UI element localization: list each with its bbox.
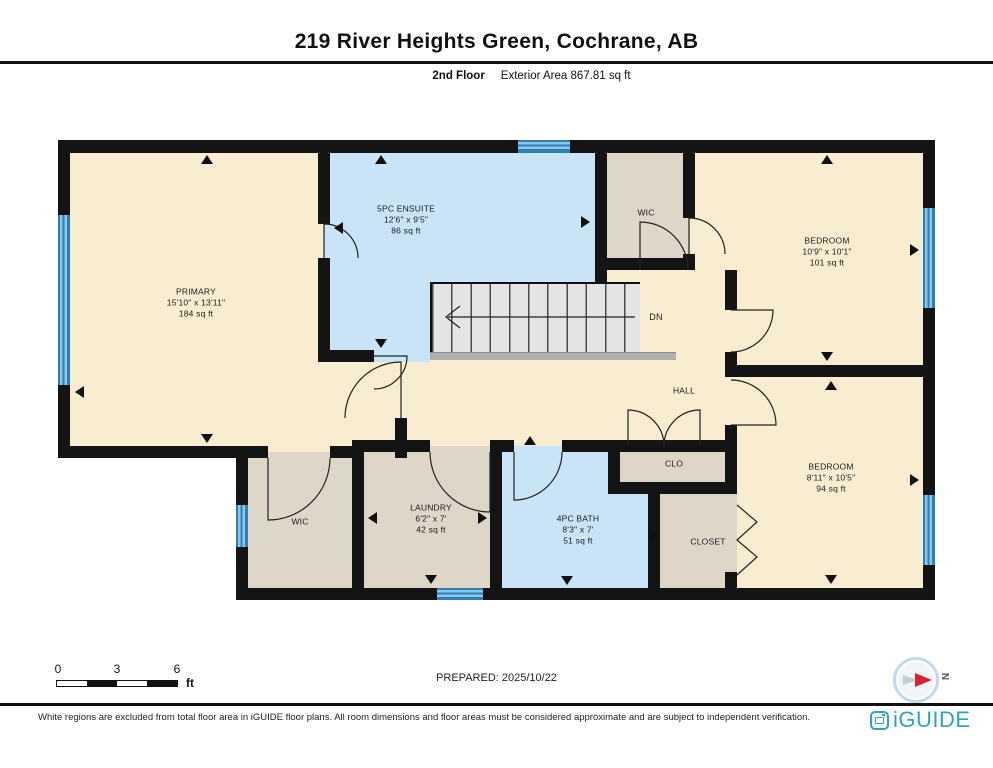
direction-arrow-icon <box>581 216 590 228</box>
room-name: HALL <box>673 385 695 396</box>
room-area: 184 sq ft <box>167 309 225 320</box>
direction-arrow-icon <box>375 155 387 164</box>
room-name: BEDROOM <box>807 461 856 472</box>
room-name: WIC <box>637 207 654 218</box>
footer-divider <box>0 703 993 706</box>
room-name: CLO <box>665 458 683 469</box>
room-dimensions: 8'3" x 7' <box>557 524 600 535</box>
room-area: 42 sq ft <box>410 525 452 536</box>
floor-subtitle: 2nd FloorExterior Area 867.81 sq ft <box>0 70 993 82</box>
clo-label: CLO <box>665 458 683 469</box>
floor-label: 2nd Floor <box>432 70 484 82</box>
room-dimensions: 12'6" x 9'5" <box>377 214 435 225</box>
direction-arrow-icon <box>368 512 377 524</box>
iguide-logo-icon <box>870 711 889 730</box>
dn-label: DN <box>649 312 662 324</box>
page-title: 219 River Heights Green, Cochrane, AB <box>0 30 993 54</box>
wic-top-label: WIC <box>637 207 654 218</box>
title-divider <box>0 61 993 64</box>
direction-arrow-icon <box>425 575 437 584</box>
direction-arrow-icon <box>375 339 387 348</box>
primary-room-label: PRIMARY 15'10" x 13'11" 184 sq ft <box>167 286 225 319</box>
exterior-area-label: Exterior Area 867.81 sq ft <box>501 70 631 82</box>
room-name: LAUNDRY <box>410 502 452 513</box>
room-dimensions: 8'11" x 10'5" <box>807 472 856 483</box>
room-name: BEDROOM <box>802 235 851 246</box>
compass-north-label: N <box>939 673 950 680</box>
room-name: WIC <box>291 516 308 527</box>
laundry-label: LAUNDRY 6'2" x 7' 42 sq ft <box>410 502 452 535</box>
hall-label: HALL <box>673 385 695 396</box>
direction-arrow-icon <box>201 155 213 164</box>
door-swing-overlay <box>58 140 935 600</box>
direction-arrow-icon <box>524 436 536 445</box>
room-area: 51 sq ft <box>557 536 600 547</box>
stairs-dn-label: DN <box>649 312 662 324</box>
direction-arrow-icon <box>201 434 213 443</box>
room-name: 4PC BATH <box>557 513 600 524</box>
closet-label: CLOSET <box>690 536 725 547</box>
direction-arrow-icon <box>478 512 487 524</box>
room-dimensions: 10'9" x 10'1" <box>802 246 851 257</box>
room-name: 5PC ENSUITE <box>377 203 435 214</box>
iguide-logo-text: iGUIDE <box>893 707 971 733</box>
room-area: 94 sq ft <box>807 484 856 495</box>
iguide-logo: iGUIDE <box>870 707 971 733</box>
room-name: PRIMARY <box>167 286 225 297</box>
direction-arrow-icon <box>910 244 919 256</box>
direction-arrow-icon <box>825 575 837 584</box>
direction-arrow-icon <box>334 222 343 234</box>
prepared-date: PREPARED: 2025/10/22 <box>0 672 993 684</box>
compass-needle <box>915 673 932 687</box>
direction-arrow-icon <box>825 381 837 390</box>
wic-bottom-label: WIC <box>291 516 308 527</box>
ensuite-room-label: 5PC ENSUITE 12'6" x 9'5" 86 sq ft <box>377 203 435 236</box>
bedroom-ne-label: BEDROOM 10'9" x 10'1" 101 sq ft <box>802 235 851 268</box>
room-area: 86 sq ft <box>377 226 435 237</box>
direction-arrow-icon <box>910 474 919 486</box>
direction-arrow-icon <box>561 576 573 585</box>
compass-icon <box>893 657 939 703</box>
direction-arrow-icon <box>649 529 658 541</box>
room-dimensions: 15'10" x 13'11" <box>167 297 225 308</box>
room-area: 101 sq ft <box>802 258 851 269</box>
room-name: CLOSET <box>690 536 725 547</box>
direction-arrow-icon <box>821 352 833 361</box>
bedroom-se-label: BEDROOM 8'11" x 10'5" 94 sq ft <box>807 461 856 494</box>
room-dimensions: 6'2" x 7' <box>410 513 452 524</box>
direction-arrow-icon <box>821 155 833 164</box>
direction-arrow-icon <box>75 386 84 398</box>
bath-label: 4PC BATH 8'3" x 7' 51 sq ft <box>557 513 600 546</box>
footer-disclaimer: White regions are excluded from total fl… <box>38 712 838 723</box>
